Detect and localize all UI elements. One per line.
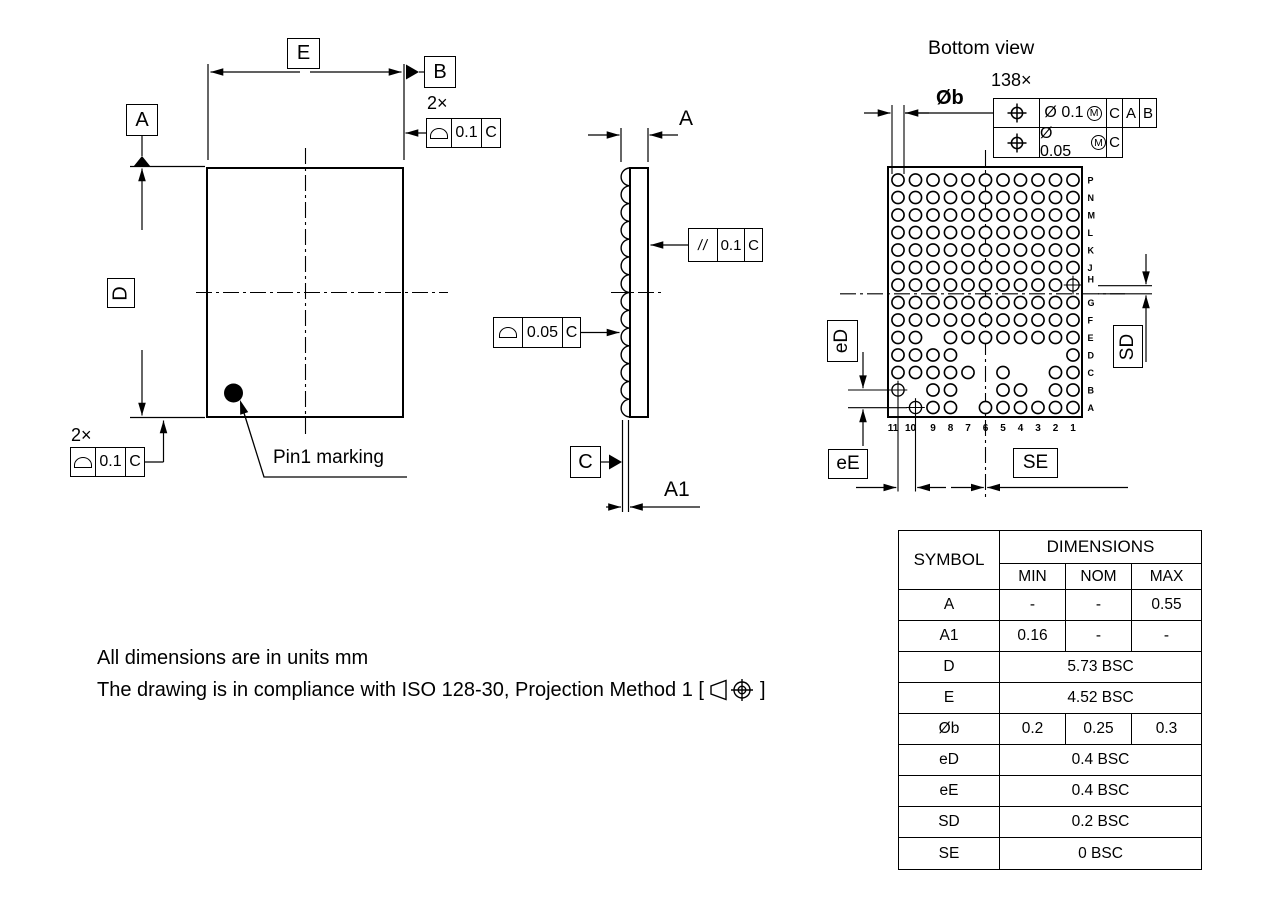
ball [1067,366,1079,378]
dim-label-A1: A1 [664,478,690,502]
grid-col-label: 9 [930,423,936,434]
grid-col-label: 3 [1035,423,1041,434]
ball [979,191,991,203]
note-units: All dimensions are in units mm [97,647,368,670]
ball [927,296,939,308]
parallelism-icon: // [688,228,718,262]
ball [1067,384,1079,396]
grid-row-label: H [1088,275,1095,285]
grid-col-label: 10 [905,423,917,434]
fcf-tolerance: 0.1 [718,228,745,262]
fcf-profile-side: 0.05 C [493,317,581,348]
table-header-max: MAX [1132,564,1201,590]
ball [997,261,1009,273]
ball [892,244,904,256]
grid-row-label: N [1088,193,1095,203]
ball [944,401,956,413]
grid-row-label: K [1088,246,1095,256]
ball [962,296,974,308]
ball [1014,261,1026,273]
ball [979,331,991,343]
ball [962,331,974,343]
fcf-profile-top: 0.1 C [426,118,501,148]
fcf-datum: B [1140,98,1157,128]
datum-label-B: B [424,56,456,88]
ball [962,279,974,291]
fcf-datum: C [1107,98,1123,128]
grid-row-label: G [1088,298,1095,308]
ball [1014,174,1026,186]
grid-col-label: 11 [888,423,899,434]
ball [962,261,974,273]
ball [1049,314,1061,326]
ball [1032,401,1044,413]
ball [997,384,1009,396]
ball [909,209,921,221]
ball [944,226,956,238]
fcf-datum: C [126,447,145,477]
table-nom-value: 0.25 [1066,714,1132,745]
ball [1014,296,1026,308]
bottom-view-title: Bottom view [928,37,1034,60]
grid-row-label: M [1088,211,1096,221]
front-view [130,64,448,477]
grid-row-label: E [1088,333,1094,343]
ball [997,209,1009,221]
ball [997,279,1009,291]
ball-count-label: 138× [991,70,1032,91]
grid-col-label: 2 [1053,423,1059,434]
ball [1014,244,1026,256]
ball [1014,384,1026,396]
ball [1049,366,1061,378]
ball [944,191,956,203]
grid-row-label: J [1088,263,1093,273]
ball [927,191,939,203]
grid-col-label: 6 [983,423,989,434]
table-span-value: 0.4 BSC [1000,776,1201,807]
ball [1049,174,1061,186]
ball [962,174,974,186]
ball [1049,384,1061,396]
fcf-parallelism: // 0.1 C [688,228,763,262]
ball [962,314,974,326]
ball [944,349,956,361]
table-symbol-cell: Øb [899,714,1000,745]
dim-label-eE: eE [828,449,868,479]
note-projection-text: The drawing is in compliance with ISO 12… [97,679,704,702]
ball [1067,349,1079,361]
table-symbol-cell: SD [899,807,1000,838]
ball [944,174,956,186]
table-min-value: 0.16 [1000,621,1066,652]
ball [1014,331,1026,343]
dim-label-E: E [287,38,320,69]
ball [1067,209,1079,221]
qty-label-bottom: 2× [71,425,92,446]
datum-c-triangle [609,455,622,470]
ball [979,209,991,221]
ball [892,174,904,186]
ball [997,401,1009,413]
grid-col-label: 8 [948,423,954,434]
table-span-value: 0.2 BSC [1000,807,1201,838]
ball [927,384,939,396]
ball [1032,261,1044,273]
ball [1049,279,1061,291]
fcf-tolerance: 0.1 [96,447,126,477]
profile-surface-icon [493,317,523,348]
ball [979,244,991,256]
fcf-datum: C [563,317,581,348]
bottom-view: PNMLKJHGFEDCBA1110987654321 [840,105,1152,500]
table-symbol-cell: SE [899,838,1000,869]
table-min-value: 0.2 [1000,714,1066,745]
ball [1032,174,1044,186]
ball [979,174,991,186]
ball [1032,296,1044,308]
ball [944,244,956,256]
ball [909,244,921,256]
ball [927,314,939,326]
ball [1014,209,1026,221]
table-symbol-cell: E [899,683,1000,714]
grid-col-label: 7 [965,423,971,434]
ball [979,401,991,413]
ball [1032,279,1044,291]
fcf-profile-bottom: 0.1 C [70,447,145,477]
profile-surface-icon [70,447,96,477]
fcf-datum: A [1123,98,1140,128]
pin1-label: Pin1 marking [273,447,384,469]
position-icon [993,98,1040,128]
table-symbol-cell: A [899,590,1000,621]
ball [1049,261,1061,273]
ball [997,296,1009,308]
grid-row-label: C [1088,368,1095,378]
ball [909,226,921,238]
ball [927,209,939,221]
ball [927,349,939,361]
ball [1067,174,1079,186]
ball [979,279,991,291]
grid-col-label: 4 [1018,423,1024,434]
fcf-tolerance: 0.1 [452,118,482,148]
table-header-symbol: SYMBOL [899,531,1000,590]
ball [909,174,921,186]
ball [892,279,904,291]
ball [1014,226,1026,238]
ball [1067,331,1079,343]
ball [997,366,1009,378]
package-outline-drawing: PNMLKJHGFEDCBA1110987654321 E A B D C eD… [0,0,1280,905]
table-max-value: - [1132,621,1201,652]
ball [927,279,939,291]
fcf-tolerance: 0.05 [523,317,563,348]
ball [1014,314,1026,326]
table-span-value: 5.73 BSC [1000,652,1201,683]
fcf-position: Ø 0.1 M C A B Ø 0.05 M C [993,98,1157,158]
dim-label-A-side: A [679,107,693,131]
table-symbol-cell: A1 [899,621,1000,652]
ball [979,296,991,308]
ball [979,226,991,238]
pin1-dot [224,384,243,403]
grid-row-label: D [1088,351,1095,361]
dimensions-table: SYMBOLDIMENSIONSMINNOMMAXA--0.55A10.16--… [898,530,1202,870]
grid-row-label: A [1088,403,1095,413]
ball [892,314,904,326]
profile-surface-icon [426,118,452,148]
ball [997,331,1009,343]
table-min-value: - [1000,590,1066,621]
ball [1067,401,1079,413]
ball [1067,226,1079,238]
qty-label-top: 2× [427,93,448,114]
ball [997,226,1009,238]
ball [1049,296,1061,308]
table-symbol-cell: eD [899,745,1000,776]
ball [1049,401,1061,413]
ball [909,296,921,308]
grid-row-label: L [1088,228,1094,238]
dim-label-D: D [107,278,135,308]
ball [944,314,956,326]
ball [962,226,974,238]
ball [1049,331,1061,343]
table-symbol-cell: D [899,652,1000,683]
ball [892,209,904,221]
fcf-datum: C [1107,128,1123,158]
ball [927,401,939,413]
ball [1067,244,1079,256]
fcf-datum: C [482,118,501,148]
ball [909,191,921,203]
ball [1049,244,1061,256]
ball [909,331,921,343]
datum-b-triangle [406,65,419,80]
table-max-value: 0.3 [1132,714,1201,745]
ball [1032,209,1044,221]
ball [892,191,904,203]
ball [1032,331,1044,343]
table-span-value: 0 BSC [1000,838,1201,869]
table-header-nom: NOM [1066,564,1132,590]
ball [927,226,939,238]
datum-label-A: A [126,104,158,136]
grid-row-label: F [1088,316,1094,326]
ball [944,296,956,308]
ball [1032,244,1044,256]
ball [1049,209,1061,221]
datum-a-triangle [134,156,151,167]
grid-col-label: 1 [1070,423,1076,434]
grid-row-label: P [1088,176,1094,186]
ball [1067,261,1079,273]
table-nom-value: - [1066,590,1132,621]
ball [892,349,904,361]
dim-label-SD: SD [1113,325,1143,368]
mmc-modifier-icon: M [1087,106,1102,121]
table-max-value: 0.55 [1132,590,1201,621]
ball [892,331,904,343]
ball [909,314,921,326]
mmc-modifier-icon: M [1091,135,1106,150]
ball [909,349,921,361]
ball [927,174,939,186]
table-header-dimensions: DIMENSIONS [1000,531,1201,564]
ball [962,191,974,203]
ball-grid: PNMLKJHGFEDCBA1110987654321 [888,174,1095,434]
ball [892,226,904,238]
grid-row-label: B [1088,386,1095,396]
ball [892,366,904,378]
ball [944,331,956,343]
ball [979,314,991,326]
table-header-min: MIN [1000,564,1066,590]
first-angle-projection-icon [707,676,757,704]
ball [909,261,921,273]
ball [1049,191,1061,203]
ball [997,191,1009,203]
table-symbol-cell: eE [899,776,1000,807]
dim-label-eD: eD [827,320,858,362]
ball [962,366,974,378]
ball [997,314,1009,326]
ball [944,209,956,221]
ball [927,366,939,378]
table-span-value: 4.52 BSC [1000,683,1201,714]
dim-label-ob: Øb [936,87,964,110]
dim-label-SE: SE [1013,448,1058,478]
table-nom-value: - [1066,621,1132,652]
ball [944,366,956,378]
datum-label-C: C [570,446,601,478]
ball [892,296,904,308]
ball [1014,191,1026,203]
ball [1067,191,1079,203]
ball [944,279,956,291]
fcf-tolerance: Ø 0.05 [1040,125,1088,161]
ball [1049,226,1061,238]
ball [997,174,1009,186]
ball [944,384,956,396]
table-span-value: 0.4 BSC [1000,745,1201,776]
ball [962,209,974,221]
ball [1032,314,1044,326]
ball [979,261,991,273]
fcf-datum: C [745,228,763,262]
note-projection-bracket: ] [760,679,766,702]
ball [909,366,921,378]
ball [1067,314,1079,326]
ball [1032,226,1044,238]
fcf-tolerance: Ø 0.1 [1044,104,1083,122]
ball [1014,401,1026,413]
ball [944,261,956,273]
ball [892,261,904,273]
ball [909,279,921,291]
ball [1067,296,1079,308]
ball [997,244,1009,256]
ball [927,244,939,256]
ball [927,261,939,273]
grid-col-label: 5 [1000,423,1006,434]
note-projection: The drawing is in compliance with ISO 12… [97,676,766,704]
ball [962,244,974,256]
ball [1014,279,1026,291]
ball [1032,191,1044,203]
position-icon [993,128,1040,158]
